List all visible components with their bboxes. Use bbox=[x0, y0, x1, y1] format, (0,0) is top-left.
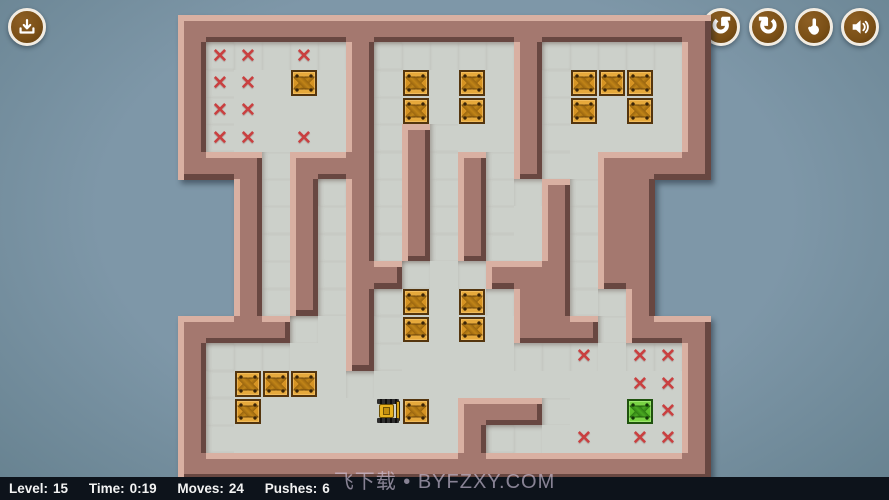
floor-cell bbox=[402, 425, 431, 453]
target-icon: ✕ bbox=[234, 97, 262, 124]
wall-cell bbox=[206, 152, 235, 180]
wall-cell bbox=[402, 124, 431, 152]
target-icon: ✕ bbox=[206, 70, 234, 97]
floor-cell bbox=[430, 70, 459, 98]
floor-cell bbox=[598, 42, 627, 70]
wall-cell bbox=[626, 234, 655, 262]
wall-cell bbox=[514, 261, 543, 289]
wall-cell bbox=[542, 15, 571, 43]
crate bbox=[459, 98, 485, 124]
floor-cell bbox=[374, 289, 403, 317]
wall-cell bbox=[654, 15, 683, 43]
wall-cell bbox=[234, 234, 263, 262]
wall-cell bbox=[402, 15, 431, 43]
floor-cell bbox=[598, 425, 627, 453]
wall-cell bbox=[598, 234, 627, 262]
target-icon: ✕ bbox=[626, 343, 654, 370]
floor-cell bbox=[598, 343, 627, 371]
crate bbox=[627, 98, 653, 124]
floor-cell bbox=[318, 42, 347, 70]
wall-cell bbox=[346, 289, 375, 317]
floor-cell bbox=[486, 316, 515, 344]
floor-cell bbox=[402, 343, 431, 371]
restart-button[interactable]: ↻ bbox=[749, 8, 787, 46]
floor-cell bbox=[570, 371, 599, 399]
floor-cell bbox=[374, 343, 403, 371]
floor-cell bbox=[542, 70, 571, 98]
wall-cell bbox=[486, 261, 515, 289]
game-board: ✕✕✕✕✕✕✕✕✕✕✕✕✕✕✕✕✕✕✕ bbox=[178, 15, 710, 480]
target-icon: ✕ bbox=[570, 343, 598, 370]
crate bbox=[627, 70, 653, 96]
wall-cell bbox=[290, 206, 319, 234]
wall-cell bbox=[234, 152, 263, 180]
wall-cell bbox=[458, 234, 487, 262]
floor-cell bbox=[486, 124, 515, 152]
floor-cell bbox=[346, 371, 375, 399]
floor-cell bbox=[542, 343, 571, 371]
floor-cell bbox=[374, 371, 403, 399]
wall-cell bbox=[430, 15, 459, 43]
wall-cell bbox=[206, 15, 235, 43]
floor-cell bbox=[486, 97, 515, 125]
download-button[interactable] bbox=[8, 8, 46, 46]
pointing-hand-icon bbox=[803, 16, 825, 38]
floor-cell bbox=[430, 261, 459, 289]
wall-cell bbox=[626, 15, 655, 43]
wall-cell bbox=[178, 152, 207, 180]
crate bbox=[291, 70, 317, 96]
floor-cell bbox=[570, 124, 599, 152]
wall-cell bbox=[598, 152, 627, 180]
wall-cell bbox=[234, 261, 263, 289]
floor-cell bbox=[234, 425, 263, 453]
wall-cell bbox=[234, 15, 263, 43]
wall-cell bbox=[290, 15, 319, 43]
crate bbox=[291, 371, 317, 397]
floor-cell bbox=[318, 289, 347, 317]
floor-cell bbox=[570, 261, 599, 289]
floor-cell bbox=[598, 289, 627, 317]
wall-cell bbox=[542, 316, 571, 344]
floor-cell bbox=[430, 42, 459, 70]
floor-cell bbox=[318, 425, 347, 453]
wall-cell bbox=[514, 398, 543, 426]
floor-cell bbox=[598, 316, 627, 344]
floor-cell bbox=[346, 398, 375, 426]
floor-cell bbox=[430, 425, 459, 453]
floor-cell bbox=[290, 316, 319, 344]
floor-cell bbox=[290, 425, 319, 453]
floor-cell bbox=[374, 97, 403, 125]
floor-cell bbox=[206, 371, 235, 399]
wall-cell bbox=[654, 152, 683, 180]
floor-cell bbox=[486, 371, 515, 399]
floor-cell bbox=[402, 42, 431, 70]
wall-cell bbox=[346, 15, 375, 43]
floor-cell bbox=[458, 124, 487, 152]
crate bbox=[599, 70, 625, 96]
wall-cell bbox=[346, 206, 375, 234]
wall-cell bbox=[178, 97, 207, 125]
wall-cell bbox=[626, 261, 655, 289]
target-icon: ✕ bbox=[654, 425, 682, 452]
floor-cell bbox=[262, 234, 291, 262]
floor-cell bbox=[206, 343, 235, 371]
wall-cell bbox=[458, 15, 487, 43]
floor-cell bbox=[262, 97, 291, 125]
wall-cell bbox=[598, 15, 627, 43]
wall-cell bbox=[346, 343, 375, 371]
floor-cell bbox=[626, 42, 655, 70]
floor-cell bbox=[514, 343, 543, 371]
floor-cell bbox=[486, 70, 515, 98]
wall-cell bbox=[346, 152, 375, 180]
floor-cell bbox=[374, 425, 403, 453]
floor-cell bbox=[402, 371, 431, 399]
download-icon bbox=[16, 16, 38, 38]
floor-cell bbox=[654, 70, 683, 98]
floor-cell bbox=[514, 179, 543, 207]
sound-button[interactable] bbox=[841, 8, 879, 46]
floor-cell bbox=[626, 124, 655, 152]
wall-cell bbox=[682, 316, 711, 344]
floor-cell bbox=[486, 42, 515, 70]
crate bbox=[263, 371, 289, 397]
floor-cell bbox=[290, 343, 319, 371]
wall-cell bbox=[626, 289, 655, 317]
crate bbox=[459, 289, 485, 315]
wall-cell bbox=[290, 289, 319, 317]
wall-cell bbox=[346, 70, 375, 98]
floor-cell bbox=[318, 97, 347, 125]
wall-cell bbox=[178, 316, 207, 344]
floor-cell bbox=[318, 206, 347, 234]
wall-cell bbox=[682, 425, 711, 453]
wall-cell bbox=[626, 206, 655, 234]
floor-cell bbox=[318, 70, 347, 98]
wall-cell bbox=[234, 316, 263, 344]
crate bbox=[235, 399, 261, 425]
floor-cell bbox=[542, 42, 571, 70]
crate bbox=[571, 70, 597, 96]
target-icon: ✕ bbox=[654, 371, 682, 398]
wall-cell bbox=[178, 124, 207, 152]
wall-cell bbox=[542, 289, 571, 317]
floor-cell bbox=[430, 152, 459, 180]
floor-cell bbox=[262, 206, 291, 234]
target-icon: ✕ bbox=[654, 398, 682, 425]
wall-cell bbox=[542, 234, 571, 262]
wall-cell bbox=[458, 425, 487, 453]
floor-cell bbox=[514, 371, 543, 399]
crate bbox=[403, 70, 429, 96]
target-icon: ✕ bbox=[206, 124, 234, 151]
floor-cell bbox=[430, 316, 459, 344]
floor-cell bbox=[458, 261, 487, 289]
floor-cell bbox=[374, 152, 403, 180]
floor-cell bbox=[598, 124, 627, 152]
wall-cell bbox=[682, 42, 711, 70]
wall-cell bbox=[682, 371, 711, 399]
wall-cell bbox=[290, 261, 319, 289]
floor-cell bbox=[290, 398, 319, 426]
target-icon: ✕ bbox=[626, 371, 654, 398]
floor-cell bbox=[430, 398, 459, 426]
target-icon: ✕ bbox=[206, 97, 234, 124]
floor-cell bbox=[262, 343, 291, 371]
wall-cell bbox=[458, 152, 487, 180]
floor-cell bbox=[206, 425, 235, 453]
floor-cell bbox=[542, 371, 571, 399]
wall-cell bbox=[346, 179, 375, 207]
wall-cell bbox=[458, 206, 487, 234]
hint-button[interactable] bbox=[795, 8, 833, 46]
floor-cell bbox=[374, 234, 403, 262]
wall-cell bbox=[682, 15, 711, 43]
wall-cell bbox=[682, 70, 711, 98]
wall-cell bbox=[514, 289, 543, 317]
floor-cell bbox=[430, 371, 459, 399]
wall-cell bbox=[290, 179, 319, 207]
floor-cell bbox=[598, 398, 627, 426]
crate bbox=[459, 70, 485, 96]
wall-cell bbox=[178, 425, 207, 453]
floor-cell bbox=[570, 398, 599, 426]
wall-cell bbox=[402, 234, 431, 262]
wall-cell bbox=[514, 15, 543, 43]
wall-cell bbox=[234, 206, 263, 234]
floor-cell bbox=[570, 42, 599, 70]
wall-cell bbox=[514, 42, 543, 70]
crate bbox=[403, 399, 429, 425]
wall-cell bbox=[486, 398, 515, 426]
wall-cell bbox=[178, 343, 207, 371]
wall-cell bbox=[262, 15, 291, 43]
wall-cell bbox=[458, 179, 487, 207]
player-tread bbox=[377, 418, 399, 423]
wall-cell bbox=[514, 316, 543, 344]
wall-cell bbox=[178, 42, 207, 70]
wall-cell bbox=[178, 15, 207, 43]
moves-label: Moves: bbox=[177, 481, 224, 496]
target-icon: ✕ bbox=[290, 124, 318, 151]
wall-cell bbox=[626, 316, 655, 344]
speaker-icon bbox=[849, 16, 871, 38]
floor-cell bbox=[570, 152, 599, 180]
wall-cell bbox=[346, 261, 375, 289]
wall-cell bbox=[206, 316, 235, 344]
floor-cell bbox=[542, 124, 571, 152]
target-icon: ✕ bbox=[206, 42, 234, 69]
wall-cell bbox=[682, 152, 711, 180]
crate bbox=[571, 98, 597, 124]
target-icon: ✕ bbox=[570, 425, 598, 452]
floor-cell bbox=[262, 124, 291, 152]
target-icon: ✕ bbox=[626, 425, 654, 452]
floor-cell bbox=[430, 289, 459, 317]
floor-cell bbox=[654, 97, 683, 125]
floor-cell bbox=[654, 124, 683, 152]
floor-cell bbox=[458, 343, 487, 371]
floor-cell bbox=[374, 124, 403, 152]
player bbox=[376, 399, 400, 423]
wall-cell bbox=[626, 152, 655, 180]
wall-cell bbox=[598, 261, 627, 289]
wall-cell bbox=[402, 179, 431, 207]
wall-cell bbox=[290, 234, 319, 262]
floor-cell bbox=[318, 261, 347, 289]
moves-value: 24 bbox=[229, 481, 244, 496]
wall-cell bbox=[402, 206, 431, 234]
wall-cell bbox=[598, 179, 627, 207]
floor-cell bbox=[570, 234, 599, 262]
floor-cell bbox=[514, 206, 543, 234]
target-icon: ✕ bbox=[654, 343, 682, 370]
wall-cell bbox=[290, 152, 319, 180]
floor-cell bbox=[262, 289, 291, 317]
floor-cell bbox=[542, 425, 571, 453]
wall-cell bbox=[514, 152, 543, 180]
floor-cell bbox=[206, 398, 235, 426]
crate bbox=[235, 371, 261, 397]
floor-cell bbox=[458, 42, 487, 70]
pushes-value: 6 bbox=[322, 481, 330, 496]
restart-icon: ↻ bbox=[758, 15, 778, 39]
crate-on-target bbox=[627, 399, 653, 425]
floor-cell bbox=[570, 179, 599, 207]
wall-cell bbox=[234, 289, 263, 317]
floor-cell bbox=[374, 316, 403, 344]
floor-cell bbox=[430, 97, 459, 125]
wall-cell bbox=[598, 206, 627, 234]
floor-cell bbox=[458, 371, 487, 399]
floor-cell bbox=[290, 97, 319, 125]
floor-cell bbox=[430, 179, 459, 207]
target-icon: ✕ bbox=[234, 42, 262, 69]
wall-cell bbox=[346, 97, 375, 125]
floor-cell bbox=[486, 152, 515, 180]
wall-cell bbox=[542, 179, 571, 207]
wall-cell bbox=[570, 15, 599, 43]
wall-cell bbox=[346, 316, 375, 344]
floor-cell bbox=[430, 234, 459, 262]
target-icon: ✕ bbox=[234, 124, 262, 151]
floor-cell bbox=[262, 398, 291, 426]
wall-cell bbox=[318, 152, 347, 180]
player-cab bbox=[383, 407, 390, 415]
floor-cell bbox=[570, 206, 599, 234]
crate bbox=[403, 289, 429, 315]
wall-cell bbox=[374, 15, 403, 43]
undo-icon: ↺ bbox=[711, 15, 731, 39]
floor-cell bbox=[318, 316, 347, 344]
floor-cell bbox=[542, 152, 571, 180]
time-value: 0:19 bbox=[130, 481, 157, 496]
wall-cell bbox=[178, 371, 207, 399]
wall-cell bbox=[514, 124, 543, 152]
floor-cell bbox=[570, 289, 599, 317]
floor-cell bbox=[262, 152, 291, 180]
status-bar: Level:15 Time:0:19 Moves:24 Pushes:6 bbox=[0, 477, 889, 500]
crate bbox=[403, 317, 429, 343]
floor-cell bbox=[374, 70, 403, 98]
wall-cell bbox=[542, 206, 571, 234]
floor-cell bbox=[318, 371, 347, 399]
wall-cell bbox=[626, 179, 655, 207]
floor-cell bbox=[346, 425, 375, 453]
wall-cell bbox=[514, 97, 543, 125]
floor-cell bbox=[542, 97, 571, 125]
floor-cell bbox=[262, 179, 291, 207]
floor-cell bbox=[318, 343, 347, 371]
floor-cell bbox=[262, 70, 291, 98]
floor-cell bbox=[598, 97, 627, 125]
floor-cell bbox=[402, 261, 431, 289]
wall-cell bbox=[346, 234, 375, 262]
floor-cell bbox=[318, 179, 347, 207]
floor-cell bbox=[542, 398, 571, 426]
floor-cell bbox=[430, 343, 459, 371]
wall-cell bbox=[262, 316, 291, 344]
floor-cell bbox=[486, 234, 515, 262]
wall-cell bbox=[318, 15, 347, 43]
floor-cell bbox=[430, 124, 459, 152]
floor-cell bbox=[318, 234, 347, 262]
floor-cell bbox=[514, 234, 543, 262]
wall-cell bbox=[178, 398, 207, 426]
level-label: Level: bbox=[9, 481, 48, 496]
wall-cell bbox=[682, 124, 711, 152]
wall-cell bbox=[346, 124, 375, 152]
floor-cell bbox=[486, 425, 515, 453]
wall-cell bbox=[682, 343, 711, 371]
floor-cell bbox=[430, 206, 459, 234]
wall-cell bbox=[682, 97, 711, 125]
wall-cell bbox=[514, 70, 543, 98]
target-icon: ✕ bbox=[234, 70, 262, 97]
floor-cell bbox=[234, 343, 263, 371]
floor-cell bbox=[374, 42, 403, 70]
floor-cell bbox=[262, 425, 291, 453]
floor-cell bbox=[262, 261, 291, 289]
wall-cell bbox=[402, 152, 431, 180]
wall-cell bbox=[234, 179, 263, 207]
floor-cell bbox=[486, 343, 515, 371]
pushes-label: Pushes: bbox=[265, 481, 318, 496]
crate bbox=[403, 98, 429, 124]
wall-cell bbox=[682, 398, 711, 426]
wall-cell bbox=[542, 261, 571, 289]
floor-cell bbox=[654, 42, 683, 70]
wall-cell bbox=[458, 398, 487, 426]
floor-cell bbox=[318, 124, 347, 152]
wall-cell bbox=[486, 15, 515, 43]
floor-cell bbox=[262, 42, 291, 70]
floor-cell bbox=[486, 206, 515, 234]
time-label: Time: bbox=[89, 481, 125, 496]
wall-cell bbox=[346, 42, 375, 70]
target-icon: ✕ bbox=[290, 42, 318, 69]
floor-cell bbox=[318, 398, 347, 426]
crate bbox=[459, 317, 485, 343]
floor-cell bbox=[598, 371, 627, 399]
floor-cell bbox=[374, 179, 403, 207]
wall-cell bbox=[178, 70, 207, 98]
wall-cell bbox=[570, 316, 599, 344]
wall-cell bbox=[654, 316, 683, 344]
floor-cell bbox=[486, 179, 515, 207]
